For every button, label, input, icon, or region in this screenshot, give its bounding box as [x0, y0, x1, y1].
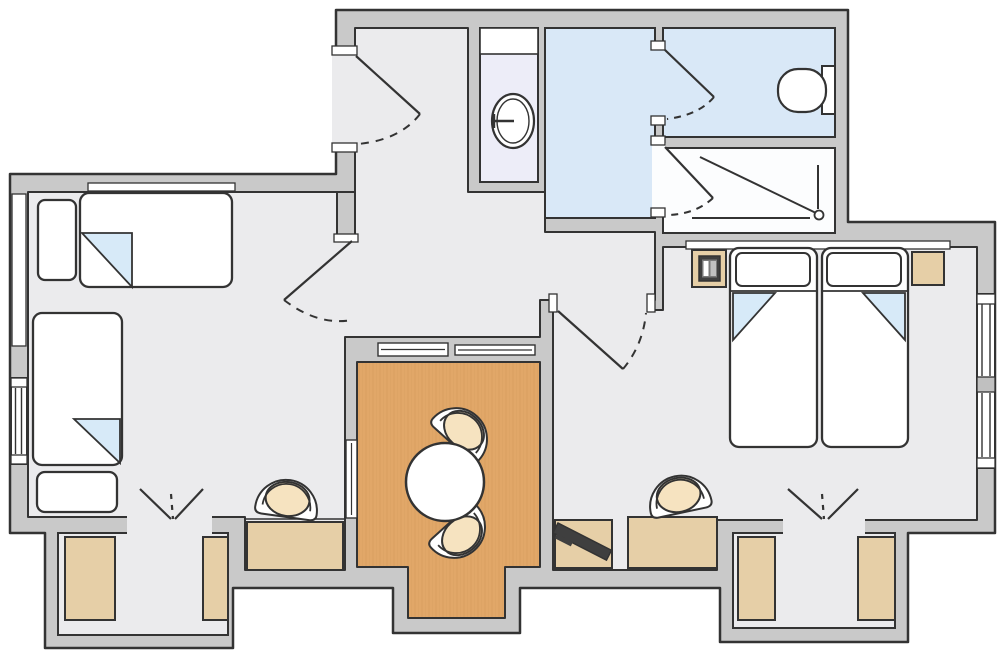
- opening-closet-right: [783, 518, 865, 535]
- toilet: [778, 66, 835, 114]
- wall-stub-entry: [337, 192, 355, 238]
- single-bed-top: [38, 193, 232, 287]
- door-jamb: [647, 294, 655, 312]
- nightstand-right: [912, 252, 944, 285]
- shelf: [480, 28, 538, 54]
- wardrobe: [203, 537, 228, 620]
- pillow: [827, 253, 901, 286]
- door-jamb: [332, 143, 357, 152]
- drain-icon: [815, 211, 824, 220]
- room-bathroom: [545, 28, 655, 218]
- opening-wc-door: [652, 48, 666, 119]
- door-jamb: [651, 116, 665, 125]
- opening-entry-door: [332, 54, 357, 146]
- telephone: [699, 256, 720, 281]
- bench: [37, 472, 117, 512]
- radiator-strip-left: [12, 194, 26, 346]
- wardrobe: [858, 537, 895, 620]
- headboard-strip-bedroom: [686, 241, 950, 249]
- desk-left: [247, 522, 343, 570]
- door-jamb: [549, 294, 557, 312]
- opening-shower-door: [652, 143, 666, 213]
- window-left: [11, 378, 27, 464]
- wardrobe: [65, 537, 115, 620]
- window-right: [977, 294, 995, 468]
- floor-plan-canvas: [0, 0, 1000, 660]
- floor-plan: [0, 0, 1000, 660]
- single-bed-left: [33, 313, 122, 512]
- headboard-strip-top: [88, 183, 235, 191]
- opening-bedroom-door: [557, 294, 647, 312]
- door-jamb: [651, 136, 665, 145]
- pillow: [38, 200, 76, 280]
- door-jamb: [334, 234, 358, 242]
- room-shower: [663, 148, 835, 233]
- door-jamb: [651, 41, 665, 50]
- door-jamb: [332, 46, 357, 55]
- door-jamb: [651, 208, 665, 217]
- washbasin: [492, 94, 534, 148]
- desk-right: [628, 517, 717, 568]
- round-table: [406, 443, 484, 521]
- wardrobe: [738, 537, 775, 620]
- pillow: [736, 253, 810, 286]
